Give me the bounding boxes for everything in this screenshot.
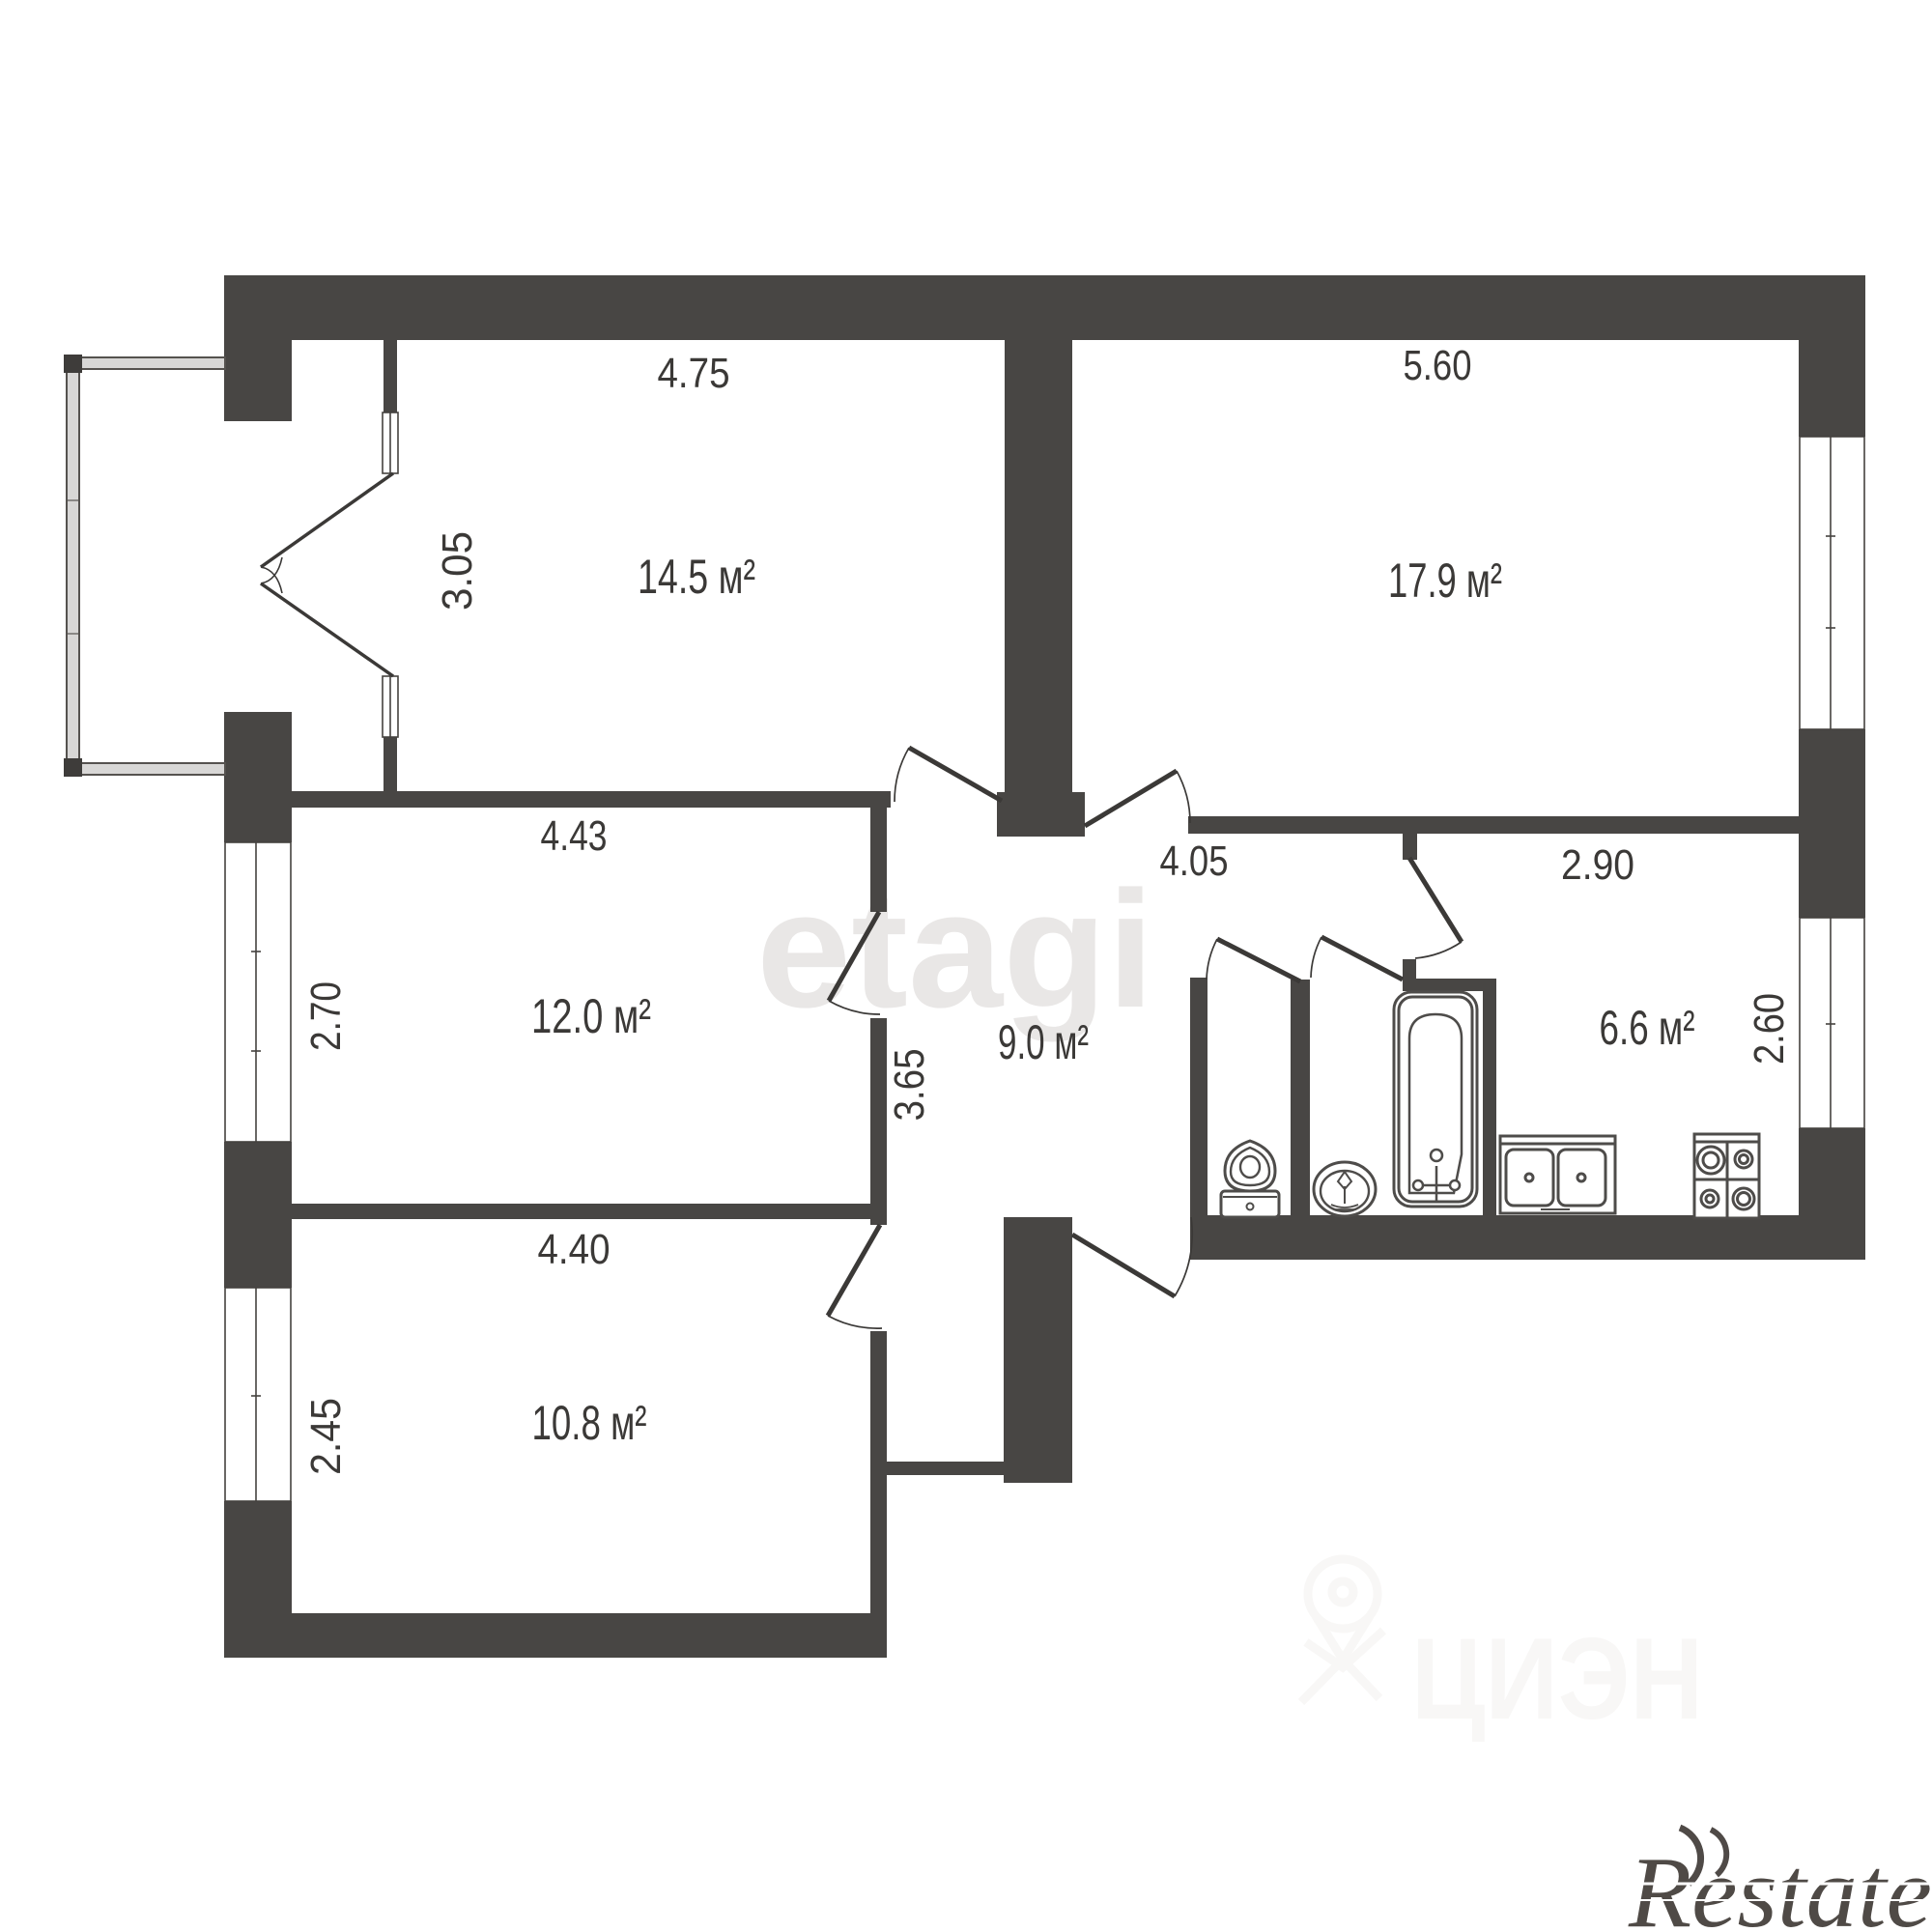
- svg-text:10.8 м²: 10.8 м²: [532, 1396, 647, 1450]
- svg-text:4.05: 4.05: [1160, 838, 1229, 885]
- svg-text:2.70: 2.70: [302, 981, 350, 1051]
- svg-text:9.0 м²: 9.0 м²: [998, 1015, 1089, 1069]
- svg-text:6.6 м²: 6.6 м²: [1600, 1001, 1695, 1055]
- svg-text:4.75: 4.75: [658, 350, 730, 397]
- svg-text:etagi: etagi: [756, 857, 1154, 1042]
- svg-text:2.60: 2.60: [1746, 993, 1793, 1065]
- svg-text:2.45: 2.45: [302, 1398, 350, 1475]
- svg-text:2.90: 2.90: [1561, 841, 1634, 889]
- svg-text:14.5 м²: 14.5 м²: [638, 550, 755, 604]
- svg-text:ЦИЭН: ЦИЭН: [1411, 1614, 1703, 1744]
- svg-text:17.9 м²: 17.9 м²: [1388, 554, 1502, 608]
- svg-text:3.05: 3.05: [434, 531, 481, 611]
- svg-text:5.60: 5.60: [1404, 342, 1472, 389]
- svg-text:12.0 м²: 12.0 м²: [531, 989, 651, 1043]
- svg-text:4.43: 4.43: [541, 812, 608, 860]
- svg-text:4.40: 4.40: [538, 1226, 611, 1273]
- svg-text:3.65: 3.65: [886, 1049, 933, 1122]
